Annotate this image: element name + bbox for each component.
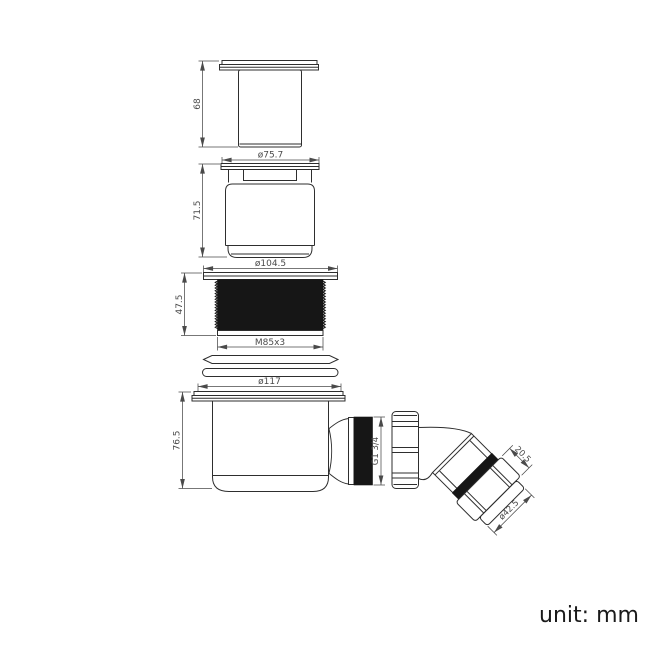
locknut-flange-diameter-label: ø104.5 xyxy=(255,259,286,269)
dim-locknut-flange-diameter: ø104.5 xyxy=(204,259,338,272)
dim-body-flange-diameter: ø117 xyxy=(198,377,341,391)
insert-flange-diameter-label: ø75.7 xyxy=(258,151,284,161)
insert-view xyxy=(221,164,319,258)
locknut-thread-label: M85x3 xyxy=(255,338,285,348)
cap-view xyxy=(220,61,319,148)
dim-insert-flange-diameter: ø75.7 xyxy=(222,151,319,164)
locknut-view xyxy=(204,273,338,336)
technical-drawing-svg: 68 ø75.7 71.5 ø104.5 xyxy=(0,0,650,650)
body-height-label: 76.5 xyxy=(173,430,183,450)
unit-label: unit: mm xyxy=(539,603,639,628)
locknut-height-label: 47.5 xyxy=(175,294,185,314)
trap-body-view xyxy=(192,392,373,492)
dim-locknut-thread: M85x3 xyxy=(218,337,324,351)
dim-insert-height: 71.5 xyxy=(193,164,227,257)
elbow-nut-length-label: 20.5 xyxy=(512,445,532,465)
dim-body-height: 76.5 xyxy=(173,392,213,489)
flat-washer xyxy=(203,369,339,377)
outlet-nut xyxy=(392,412,419,489)
dim-outlet-thread: G1 3/4 xyxy=(371,417,385,485)
drawing-sheet: 68 ø75.7 71.5 ø104.5 xyxy=(0,0,650,650)
outlet-thread-label: G1 3/4 xyxy=(371,437,381,465)
dim-cap-height: 68 xyxy=(193,61,238,147)
elbow-fitting: 20.5 ø42.5 xyxy=(419,415,554,539)
seal-washer xyxy=(204,356,339,364)
locknut-thread-body xyxy=(218,280,324,331)
dim-locknut-height: 47.5 xyxy=(175,273,216,336)
outlet-thread-body xyxy=(354,417,373,485)
cap-height-label: 68 xyxy=(193,98,203,110)
insert-height-label: 71.5 xyxy=(193,200,203,220)
body-flange-diameter-label: ø117 xyxy=(258,377,281,387)
